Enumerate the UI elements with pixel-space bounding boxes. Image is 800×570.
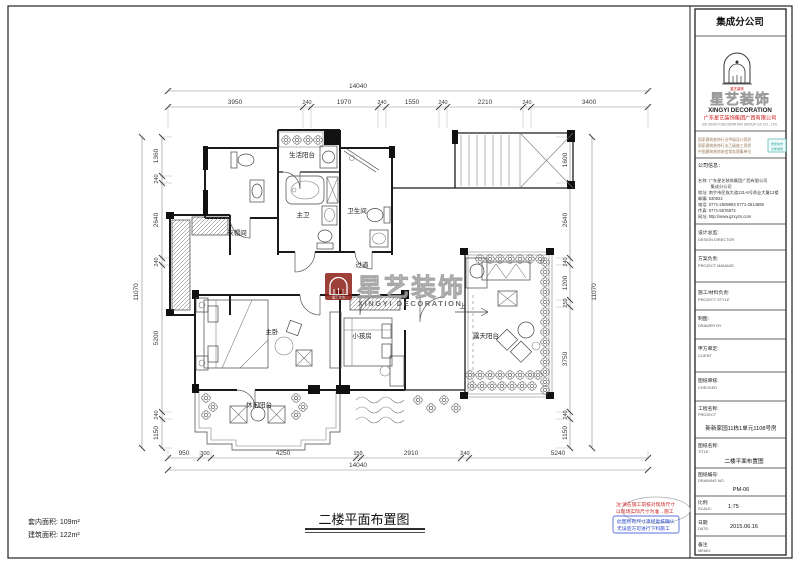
room-label-terrace: 露天阳台 [473, 331, 499, 340]
info-line: 名称: 广东星艺装饰集团广西有限公司 [698, 177, 767, 184]
area-build-label: 建筑面积: 122m² [28, 530, 80, 539]
dim: 3400 [582, 99, 597, 106]
dim: 2910 [404, 450, 419, 457]
dim: 240 [377, 100, 386, 106]
project-label-cn: 工程名称: [698, 405, 719, 412]
dim-left-overall: 11070 [133, 283, 140, 301]
field-label-cn: 设计总监: [698, 229, 719, 236]
watermark-brand-name: 星艺装饰 [357, 274, 465, 302]
dim: 240 [154, 410, 160, 419]
certification-stamp: 质量信誉 双重保障 [768, 139, 786, 152]
company-name-cn: 广东星艺装饰集团广西有限公司 [704, 114, 777, 122]
date-value: 2015.06.16 [730, 524, 758, 530]
dim: 250 [563, 298, 569, 307]
dim: 5200 [153, 330, 160, 345]
dim: 1150 [562, 426, 569, 440]
drawing-label-en: TITLE [698, 449, 709, 454]
revision-note: 注:请在施工前核对现场尺寸 以现场实际尺寸为准→施工 此图所有尺寸须经复核确认 … [613, 497, 690, 533]
drawing-label-cn: 图纸名称: [698, 442, 719, 449]
dim: 240 [522, 100, 531, 106]
floorplan-canvas: 14040 3950 240 1970 240 1550 240 2210 24… [0, 0, 800, 565]
room-label-bath: 卫生间 [347, 206, 367, 215]
field-label-cn: 方案负责: [698, 255, 719, 262]
field-label-en: CHECKED [698, 385, 717, 390]
dim: 300 [200, 451, 209, 457]
project-label-en: PROJECT [698, 412, 717, 417]
field-label-en: PROJECT MANAGE [698, 263, 734, 268]
branch-header: 集成分公司 [715, 16, 764, 28]
fixtures [231, 132, 390, 249]
rug [356, 397, 404, 423]
dim: 1360 [153, 148, 160, 163]
wall-columns [166, 130, 575, 399]
honor-line: 中国建筑装饰协会常务理事单位 [698, 149, 751, 154]
flowerbox-plants [281, 135, 322, 144]
dim: 240 [563, 257, 569, 266]
room-label-master-bed: 主卧 [266, 327, 280, 336]
field-label-en: PROJECT STYLE [698, 297, 730, 302]
watermark-crest-caption: 星艺装饰 [332, 295, 345, 300]
dim: 3950 [228, 99, 243, 106]
dim: 240 [460, 451, 469, 457]
company-crest: 星艺装饰 [722, 53, 752, 91]
watermark-logo: 星艺装饰 星艺装饰 XINGYI DECORATION [325, 273, 465, 308]
note-blue-line2: 无误后方可进行下料施工 [617, 525, 670, 532]
memo-label-en: MEMO: [698, 548, 711, 553]
info-line: 网址: http://www.gzxyzs.com [698, 213, 752, 220]
room-label-kids: 小孩房 [352, 331, 372, 340]
sheet-footer: 套内面积: 109m² 建筑面积: 122m² 二楼平面布置图 [28, 512, 425, 539]
project-name: 新新家园11栋1单元1108号房 [705, 424, 777, 432]
brand-name: 星艺装饰 [710, 91, 770, 107]
dim: 1550 [405, 99, 420, 106]
field-label-cn: 甲方审定: [698, 345, 719, 352]
field-label-en: DESIGN DIRECTOR [698, 237, 734, 242]
brand-en: XINGYI DECORATION [708, 107, 772, 114]
field-label-cn: 施工/材料负责: [698, 289, 729, 296]
room-label-service-balcony: 生活阳台 [289, 150, 315, 159]
info-line: 邮编: 530022 [698, 195, 723, 202]
room-label-hall: 过道 [356, 260, 370, 269]
drawing-sheet: 14040 3950 240 1970 240 1550 240 2210 24… [0, 0, 800, 570]
dim: 240 [154, 257, 160, 266]
scale-value: 1:75 [728, 504, 739, 510]
dim: 1150 [153, 426, 160, 440]
title-block: 集成分公司 星艺装饰 星艺装饰 XINGYI DECORATION 广东星艺装饰… [695, 9, 786, 555]
watermark-brand-en: XINGYI DECORATION [358, 299, 463, 308]
memo-label-cn: 备注 [698, 541, 708, 548]
note-blue-line1: 此图所有尺寸须经复核确认 [617, 518, 675, 525]
dim: 1600 [562, 152, 569, 167]
info-line: 传真: 0771-5576672 [698, 207, 736, 214]
area-inner-label: 套内面积: 109m² [28, 517, 80, 526]
dim: 950 [179, 450, 190, 457]
stamp-line1: 质量信誉 [771, 141, 783, 146]
sheet-title: 二楼平面布置图 [318, 512, 409, 527]
dim: 4250 [276, 450, 291, 457]
drawing-title: 二楼平面布置图 [724, 457, 764, 465]
note-red-line1: 注:请在施工前核对现场尺寸 [616, 501, 675, 508]
info-line: 集成分公司 [698, 183, 732, 190]
dim: 240 [302, 100, 311, 106]
number-label-en: DRAWING NO. [698, 478, 725, 483]
dim: 1200 [562, 275, 569, 290]
staircase [461, 133, 573, 188]
field-label-cn: 图纸审核: [698, 377, 719, 384]
dim: 2210 [478, 99, 493, 106]
dim: 240 [154, 174, 160, 183]
dim-right-overall: 11070 [591, 283, 598, 301]
info-header: 公司信息： [698, 162, 723, 169]
company-name-en: GD XINGYI DECORATION GROUP GX CO., LTD. [702, 123, 778, 127]
dim: 150 [353, 451, 362, 457]
room-label-cloakroom: 衣帽间 [227, 228, 247, 237]
dim: 3750 [562, 351, 569, 366]
dim-top-overall: 14040 [349, 83, 367, 90]
date-label-en: DATE: [698, 526, 709, 531]
scale-label-en: SCALE: [698, 506, 712, 511]
dim-bottom-overall: 14040 [349, 462, 367, 469]
scale-label-cn: 比例 [698, 499, 708, 506]
field-label-en: DRAWER BY [698, 323, 722, 328]
kids-room-furniture [344, 318, 404, 386]
drawing-number: PM-06 [733, 487, 749, 493]
dim: 2640 [562, 212, 569, 227]
dim: 5240 [551, 450, 566, 457]
number-label-cn: 图纸编号: [698, 471, 719, 478]
room-label-master-bath: 主卫 [297, 210, 311, 219]
info-line: 地址: 南宁市民族大道131-6号承业大厦12楼 [698, 189, 779, 196]
room-label-leisure-balcony: 休闲阳台 [246, 400, 272, 409]
info-line: 电话: 0771-2609993 0771-2614659 [698, 201, 765, 208]
dim: 2640 [153, 212, 160, 227]
field-label-en: CLIENT [698, 353, 712, 358]
honor-line: 国家建筑装饰行业甲级设计资质 [698, 137, 751, 142]
note-red-line2: 以现场实际尺寸为准→施工 [616, 508, 674, 515]
field-label-cn: 制图: [698, 315, 709, 322]
dim: 240 [438, 100, 447, 106]
dim: 1970 [337, 99, 352, 106]
stamp-line2: 双重保障 [771, 146, 783, 151]
dim: 240 [563, 410, 569, 419]
honor-line: 国家建筑装饰行业乙级施工资质 [698, 143, 751, 148]
